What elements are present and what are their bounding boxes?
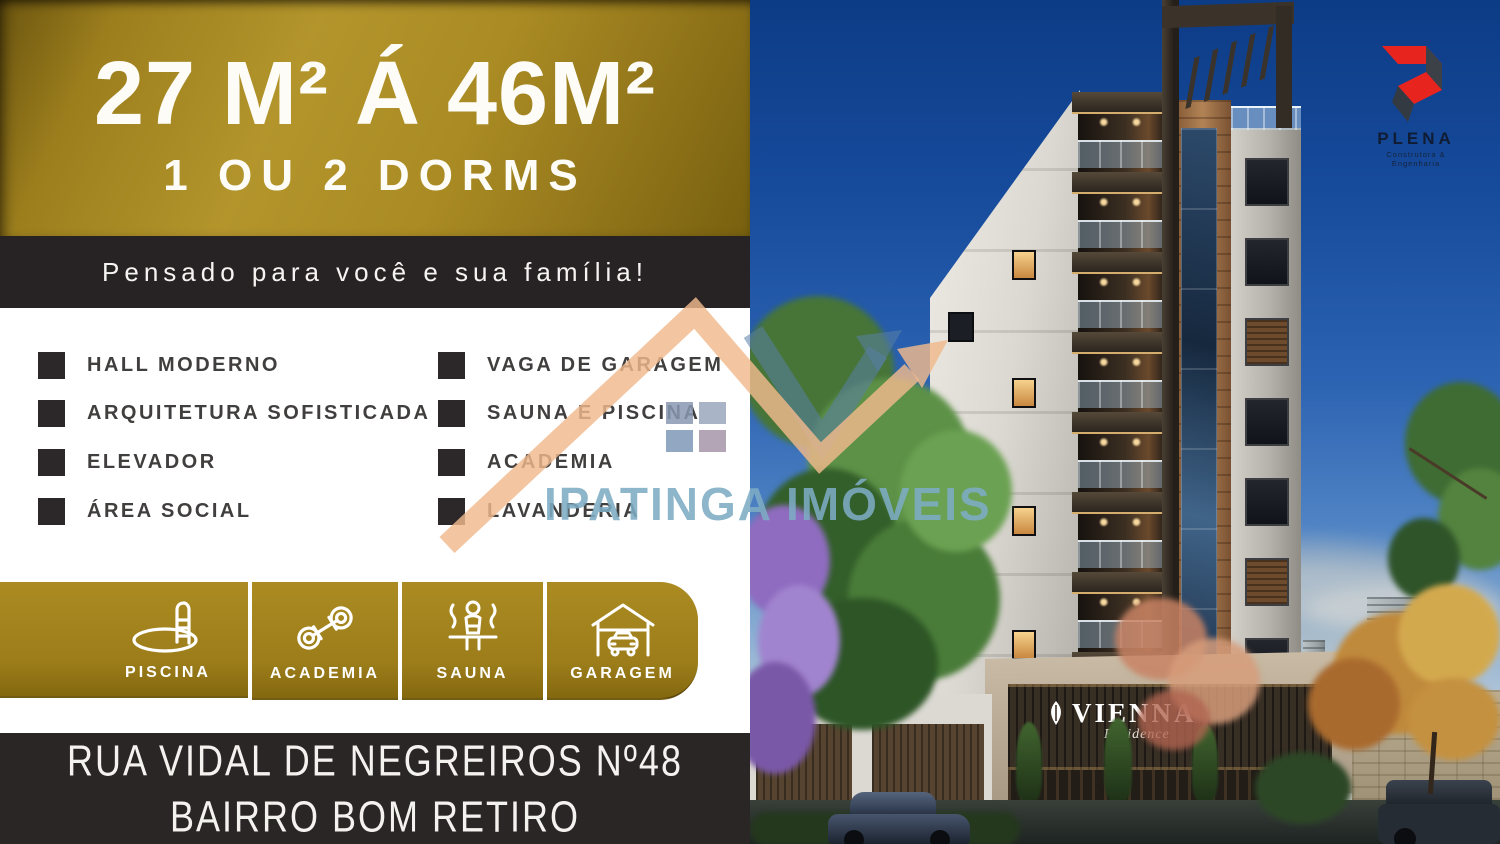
bullet-square-icon: [438, 449, 465, 476]
bullet-square-icon: [38, 352, 65, 379]
area-range-title: 27 M² Á 46M²: [94, 49, 656, 139]
cypress-shrub: [1104, 718, 1132, 802]
amenity-label: GARAGEM: [570, 665, 675, 683]
facade-window-shutter: [1245, 558, 1289, 606]
bullet-square-icon: [38, 400, 65, 427]
dark-window: [948, 312, 974, 342]
plena-logo-icon: [1368, 34, 1464, 126]
tulip-pin-icon: [1046, 699, 1066, 729]
lit-window: [1012, 378, 1036, 408]
facade-window-shutter: [1245, 318, 1289, 366]
suv-car: [1378, 780, 1500, 844]
address-line-1: RUA VIDAL DE NEGREIROS Nº48: [67, 735, 683, 786]
pool-icon: [127, 596, 209, 658]
pergola-beam: [1162, 2, 1294, 29]
feature-label: ARQUITETURA SOFISTICADA: [87, 402, 430, 425]
developer-tagline: Construtora & Engenharia: [1366, 150, 1466, 168]
feature-label: HALL MODERNO: [87, 354, 280, 377]
lit-window: [1012, 506, 1036, 536]
amenity-card-piscina: PISCINA: [0, 582, 248, 698]
facade-window: [1245, 478, 1289, 526]
amenity-band: PISCINA ACADEMIA: [0, 582, 750, 698]
sauna-icon: [437, 597, 509, 659]
pergola-slats: [1183, 24, 1277, 110]
balcony-floor: [1078, 252, 1164, 332]
feature-label: VAGA DE GARAGEM: [487, 354, 723, 377]
bedrooms-subtitle: 1 OU 2 DORMS: [163, 151, 586, 201]
bullet-square-icon: [38, 498, 65, 525]
flyer-panel: 27 M² Á 46M² 1 OU 2 DORMS Pensado para v…: [0, 0, 750, 844]
wall-slat-panel: [872, 724, 984, 800]
feature-label: ELEVADOR: [87, 451, 217, 474]
autumn-tree-foliage: [1308, 658, 1400, 750]
facade-window: [1245, 238, 1289, 286]
facade-window: [1245, 398, 1289, 446]
balcony-floor: [1078, 332, 1164, 412]
facade-window: [1245, 158, 1289, 206]
balcony-floor: [1078, 412, 1164, 492]
pink-tree-foliage: [1138, 690, 1210, 750]
feature-item: SAUNA E PISCINA: [438, 400, 700, 427]
feature-label: ÁREA SOCIAL: [87, 500, 252, 523]
cypress-shrub: [1016, 722, 1042, 802]
pergola-post: [1276, 6, 1292, 128]
bullet-square-icon: [38, 449, 65, 476]
feature-item: ACADEMIA: [438, 449, 615, 476]
lit-window: [1012, 250, 1036, 280]
balcony-floor: [1078, 492, 1164, 572]
bush: [1255, 752, 1351, 824]
amenity-label: SAUNA: [437, 665, 509, 683]
header-banner: 27 M² Á 46M² 1 OU 2 DORMS: [0, 0, 750, 236]
autumn-tree-foliage: [1408, 678, 1500, 760]
garage-icon: [586, 597, 660, 659]
bullet-square-icon: [438, 352, 465, 379]
feature-item: VAGA DE GARAGEM: [438, 352, 723, 379]
autumn-tree-foliage: [1398, 584, 1500, 686]
lit-window: [1012, 630, 1036, 660]
amenity-label: ACADEMIA: [270, 665, 380, 683]
dumbbell-icon: [289, 597, 361, 659]
tagline-text: Pensado para você e sua família!: [102, 257, 648, 288]
feature-item: ÁREA SOCIAL: [38, 498, 252, 525]
balcony-floor: [1078, 172, 1164, 252]
feature-item: ARQUITETURA SOFISTICADA: [38, 400, 430, 427]
amenity-card-sauna: SAUNA: [402, 582, 543, 700]
balcony-floor: [1078, 92, 1164, 172]
building-render-photo: VIENNA Residence: [750, 0, 1500, 844]
features-list: HALL MODERNO ARQUITETURA SOFISTICADA ELE…: [0, 308, 750, 582]
bullet-square-icon: [438, 498, 465, 525]
agency-watermark-text: IPATINGA IMÓVEIS: [544, 477, 992, 531]
tagline-bar: Pensado para você e sua família!: [0, 236, 750, 308]
sedan-car: [828, 792, 970, 844]
developer-logo: PLENA Construtora & Engenharia: [1366, 34, 1466, 168]
feature-label: ACADEMIA: [487, 451, 615, 474]
amenity-card-garagem: GARAGEM: [547, 582, 698, 700]
feature-item: ELEVADOR: [38, 449, 217, 476]
watermark-window-icon: [666, 402, 728, 454]
building-corner-post: [1162, 0, 1179, 700]
feature-item: HALL MODERNO: [38, 352, 280, 379]
developer-name: PLENA: [1366, 129, 1466, 149]
flyer-canvas: 27 M² Á 46M² 1 OU 2 DORMS Pensado para v…: [0, 0, 1500, 844]
bullet-square-icon: [438, 400, 465, 427]
address-line-2: BAIRRO BOM RETIRO: [170, 791, 580, 842]
address-bar: RUA VIDAL DE NEGREIROS Nº48 BAIRRO BOM R…: [0, 733, 750, 844]
amenity-card-academia: ACADEMIA: [252, 582, 398, 700]
amenity-label: PISCINA: [125, 664, 211, 682]
